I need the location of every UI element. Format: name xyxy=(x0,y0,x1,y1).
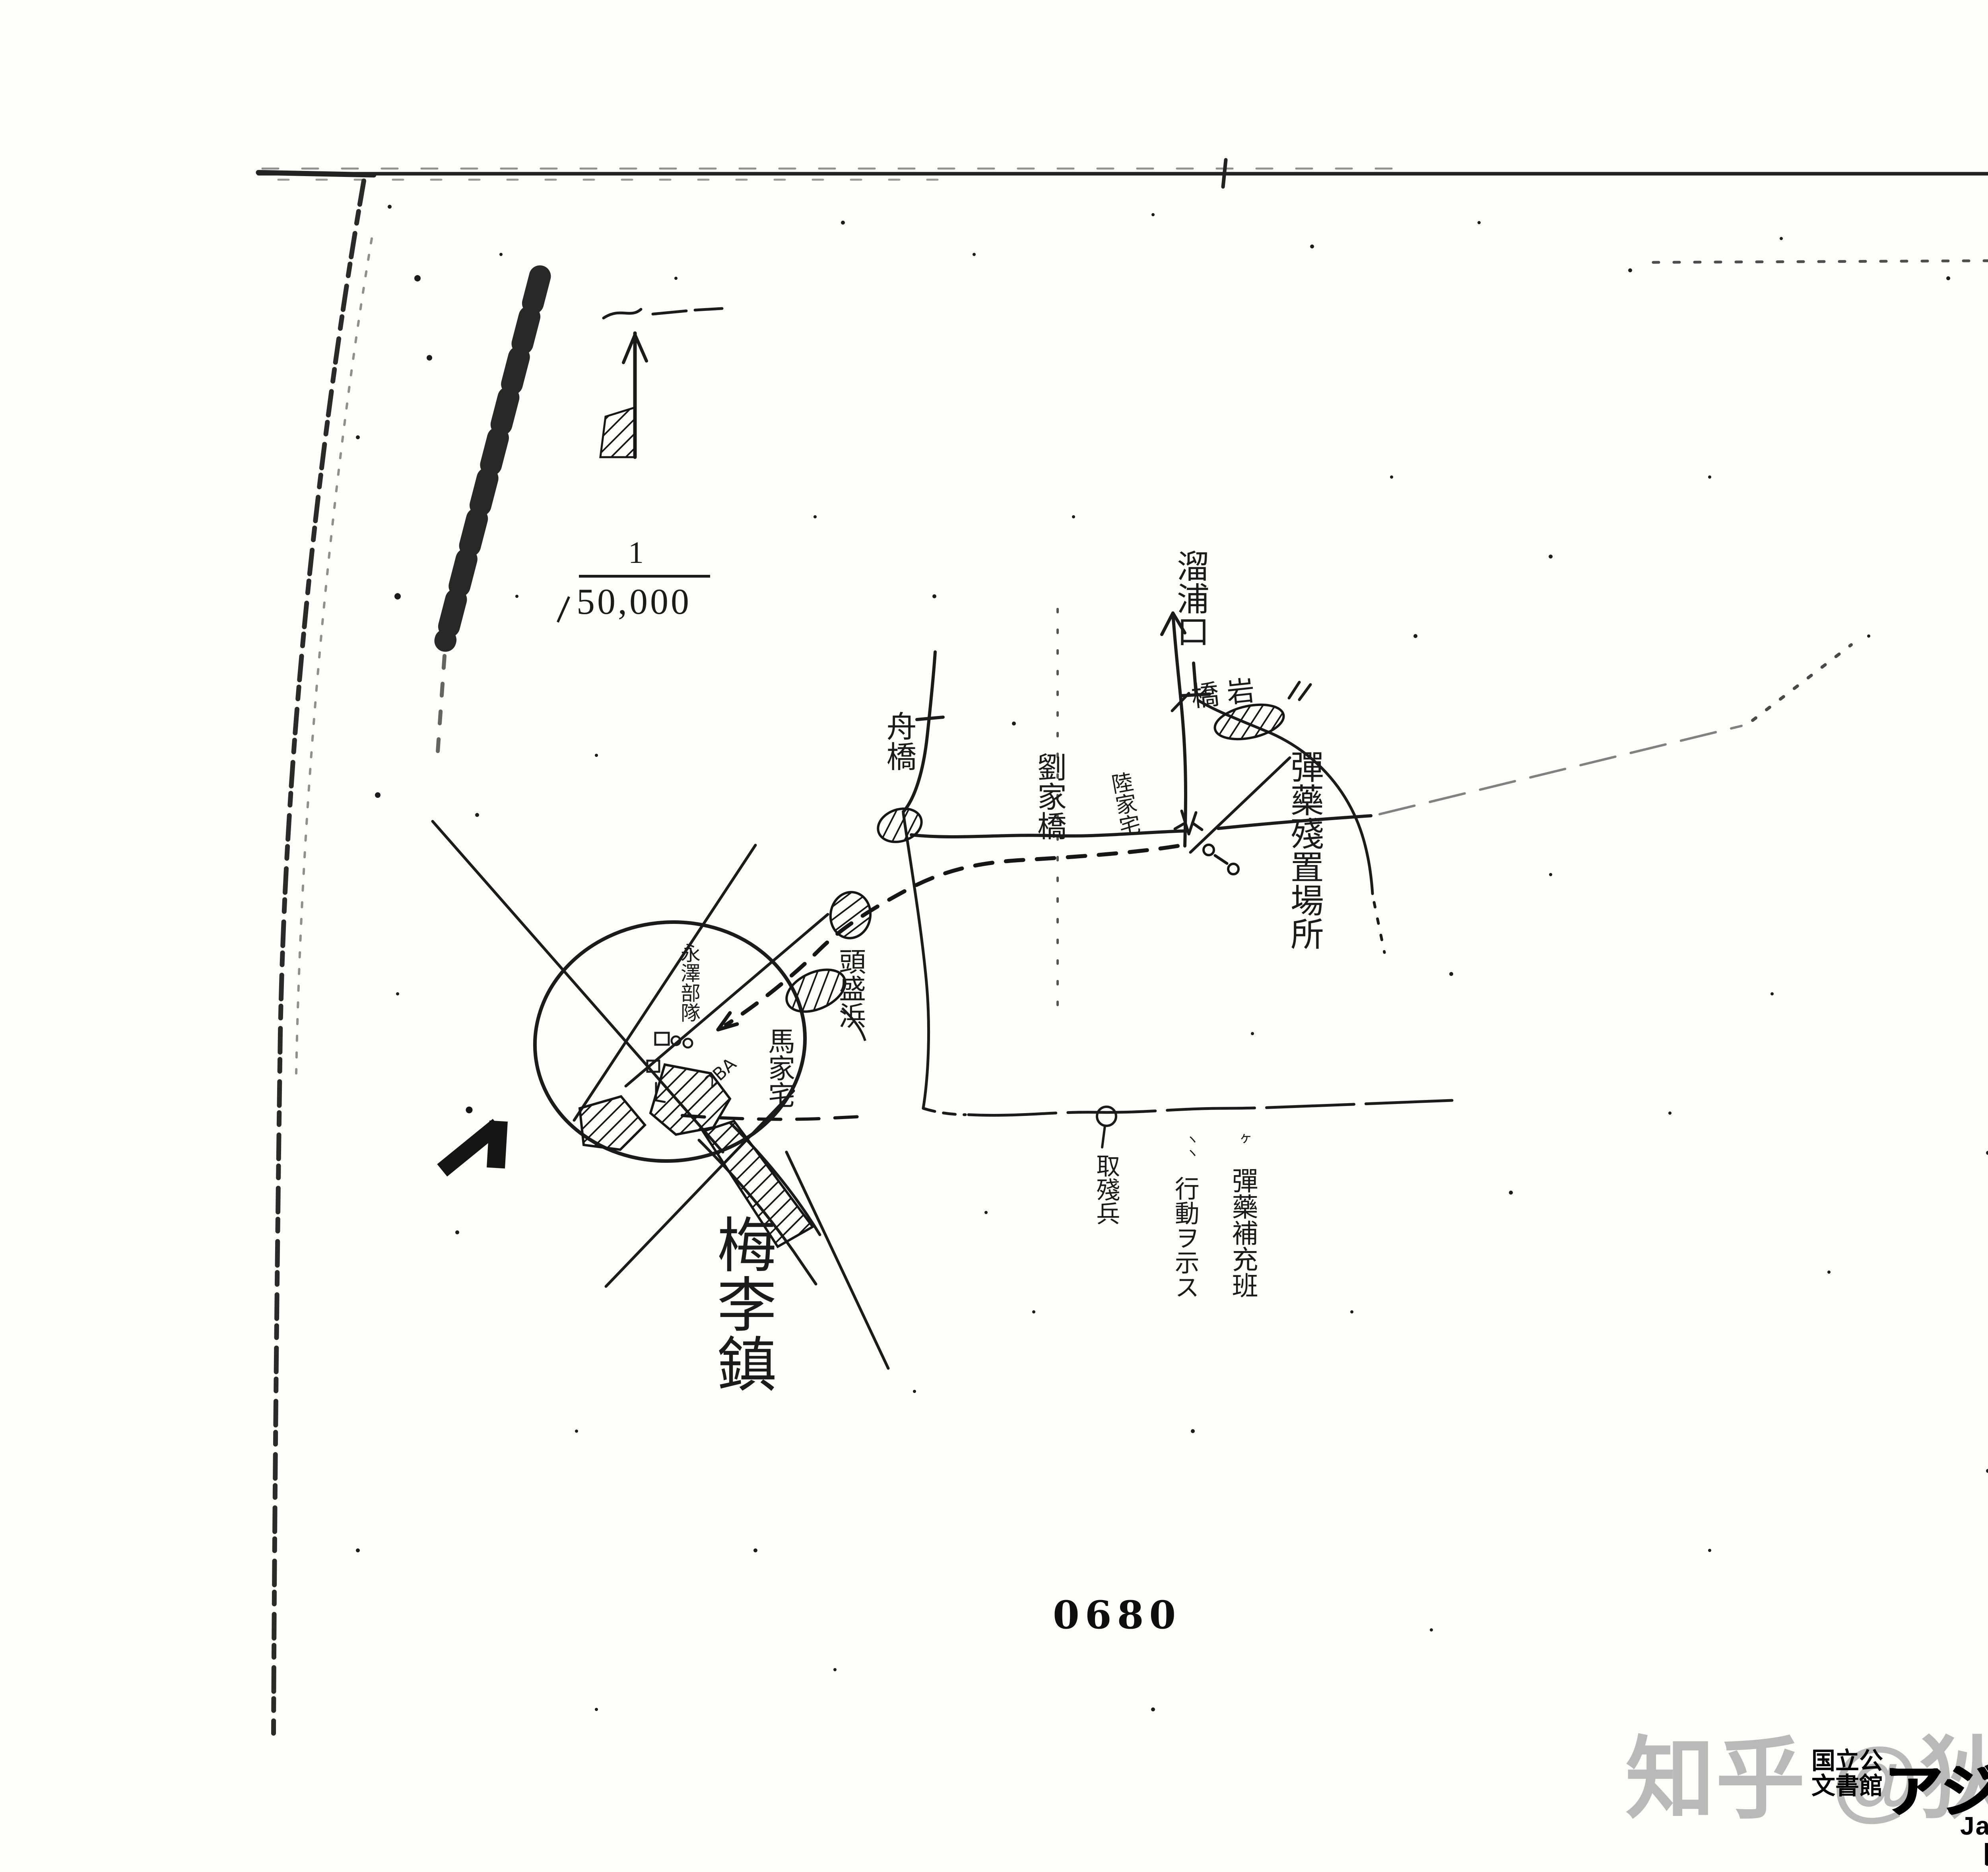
map-drawing xyxy=(0,0,1988,1860)
scale-bar xyxy=(579,575,710,578)
page-number-stamp: 0680 xyxy=(1053,1593,1181,1637)
label-bakataku: 馬家宅 xyxy=(766,1027,792,1108)
unit-area-symbols xyxy=(523,682,1310,1174)
remnant-troop-symbol xyxy=(1097,1107,1116,1126)
label-kyogan: 橋岩 xyxy=(1190,677,1264,712)
jacar-org-line1: 国立公 xyxy=(1811,1748,1883,1773)
tick-marks-left: ヽヽ xyxy=(1184,1132,1197,1159)
scale-numerator: 1 xyxy=(628,537,644,568)
scale-denominator: 50,000 xyxy=(577,584,691,619)
heavy-arrow-blotch xyxy=(442,1107,499,1170)
bridge-tick-funabashi xyxy=(917,717,943,720)
river-road-lines xyxy=(433,609,1851,1368)
jacar-org-line2: 文書館 xyxy=(1811,1773,1883,1798)
scan-speckles xyxy=(356,205,1988,1711)
label-funabashi: 舟橋 xyxy=(883,711,913,771)
label-ryukakyo: 劉家橋 xyxy=(1035,752,1064,840)
annotation-shows-movement: 行動ヲ示ス xyxy=(1172,1176,1196,1299)
scan-border-artifacts xyxy=(258,160,1988,1733)
north-arrow-pennant xyxy=(600,407,635,457)
annotation-ammo-supply-squad: 彈藥補充班 xyxy=(1229,1167,1255,1298)
label-eitakubutai: 永澤部隊 xyxy=(679,943,699,1022)
jacar-en-title: Japan Center for Asian Historical Record… xyxy=(1960,1811,1988,1841)
scanned-map-page: { "document": { "page_stamp": "0680" }, … xyxy=(0,0,1988,1860)
tick-marks-right: ヶ xyxy=(1236,1131,1250,1146)
annotation-remnant-troops: 取殘兵 xyxy=(1094,1154,1118,1225)
north-arrow xyxy=(600,308,722,457)
building-square xyxy=(655,1033,669,1045)
label-touseihama: 頭盛浜 xyxy=(837,948,863,1029)
jacar-org-stack: 国立公 文書館 xyxy=(1811,1748,1883,1798)
label-bairichin: 梅李鎮 xyxy=(712,1214,770,1393)
pointer-line-ammo-dump xyxy=(1190,758,1290,852)
route-arrow-shaft xyxy=(1173,613,1186,846)
annotation-ammo-dump: 彈藥殘置場所 xyxy=(1287,750,1320,950)
label-ryuhoko: 溜浦口 xyxy=(1174,549,1206,647)
faint-dotted-diagonal xyxy=(1753,645,1851,720)
jacar-url: http://www.jacar.go.jp xyxy=(1984,1837,1988,1872)
